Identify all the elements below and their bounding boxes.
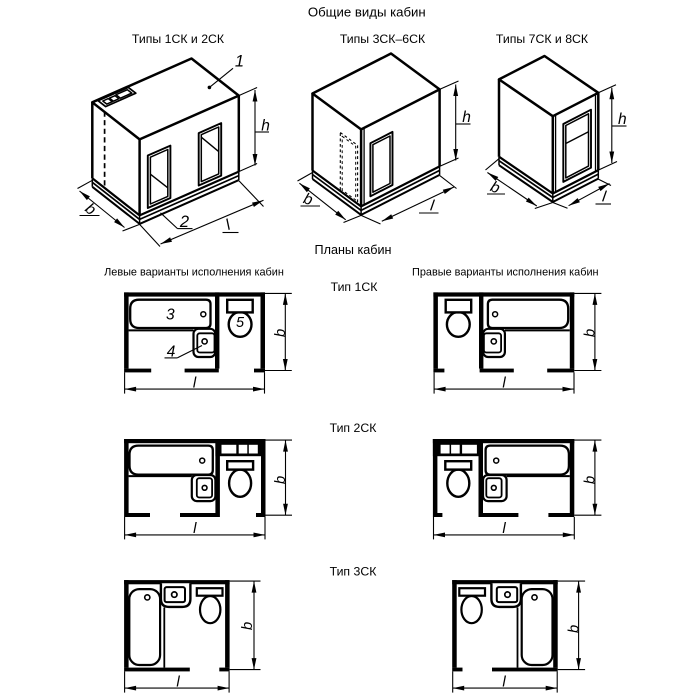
svg-text:5: 5 (236, 315, 245, 331)
svg-text:Общие виды кабин: Общие виды кабин (308, 5, 426, 20)
svg-text:Тип 1СК: Тип 1СК (331, 280, 379, 294)
svg-text:1: 1 (235, 53, 244, 71)
svg-text:b: b (582, 476, 599, 484)
svg-text:b: b (582, 329, 599, 337)
svg-text:Типы 3СК–6СК: Типы 3СК–6СК (340, 32, 426, 46)
svg-text:3: 3 (166, 307, 175, 324)
svg-text:Тип 3СК: Тип 3СК (330, 565, 378, 579)
svg-text:b: b (239, 622, 256, 630)
svg-text:Левые варианты исполнения каби: Левые варианты исполнения кабин (104, 267, 284, 279)
svg-text:b: b (272, 329, 289, 337)
svg-text:Типы 1СК и 2СК: Типы 1СК и 2СК (132, 32, 225, 46)
svg-text:Планы кабин: Планы кабин (315, 243, 392, 257)
svg-text:b: b (565, 625, 582, 633)
svg-text:b: b (272, 476, 289, 484)
svg-text:Правые варианты исполнения каб: Правые варианты исполнения кабин (412, 267, 599, 279)
svg-text:Тип 2СК: Тип 2СК (330, 421, 378, 435)
svg-text:Типы 7СК и 8СК: Типы 7СК и 8СК (496, 32, 589, 46)
